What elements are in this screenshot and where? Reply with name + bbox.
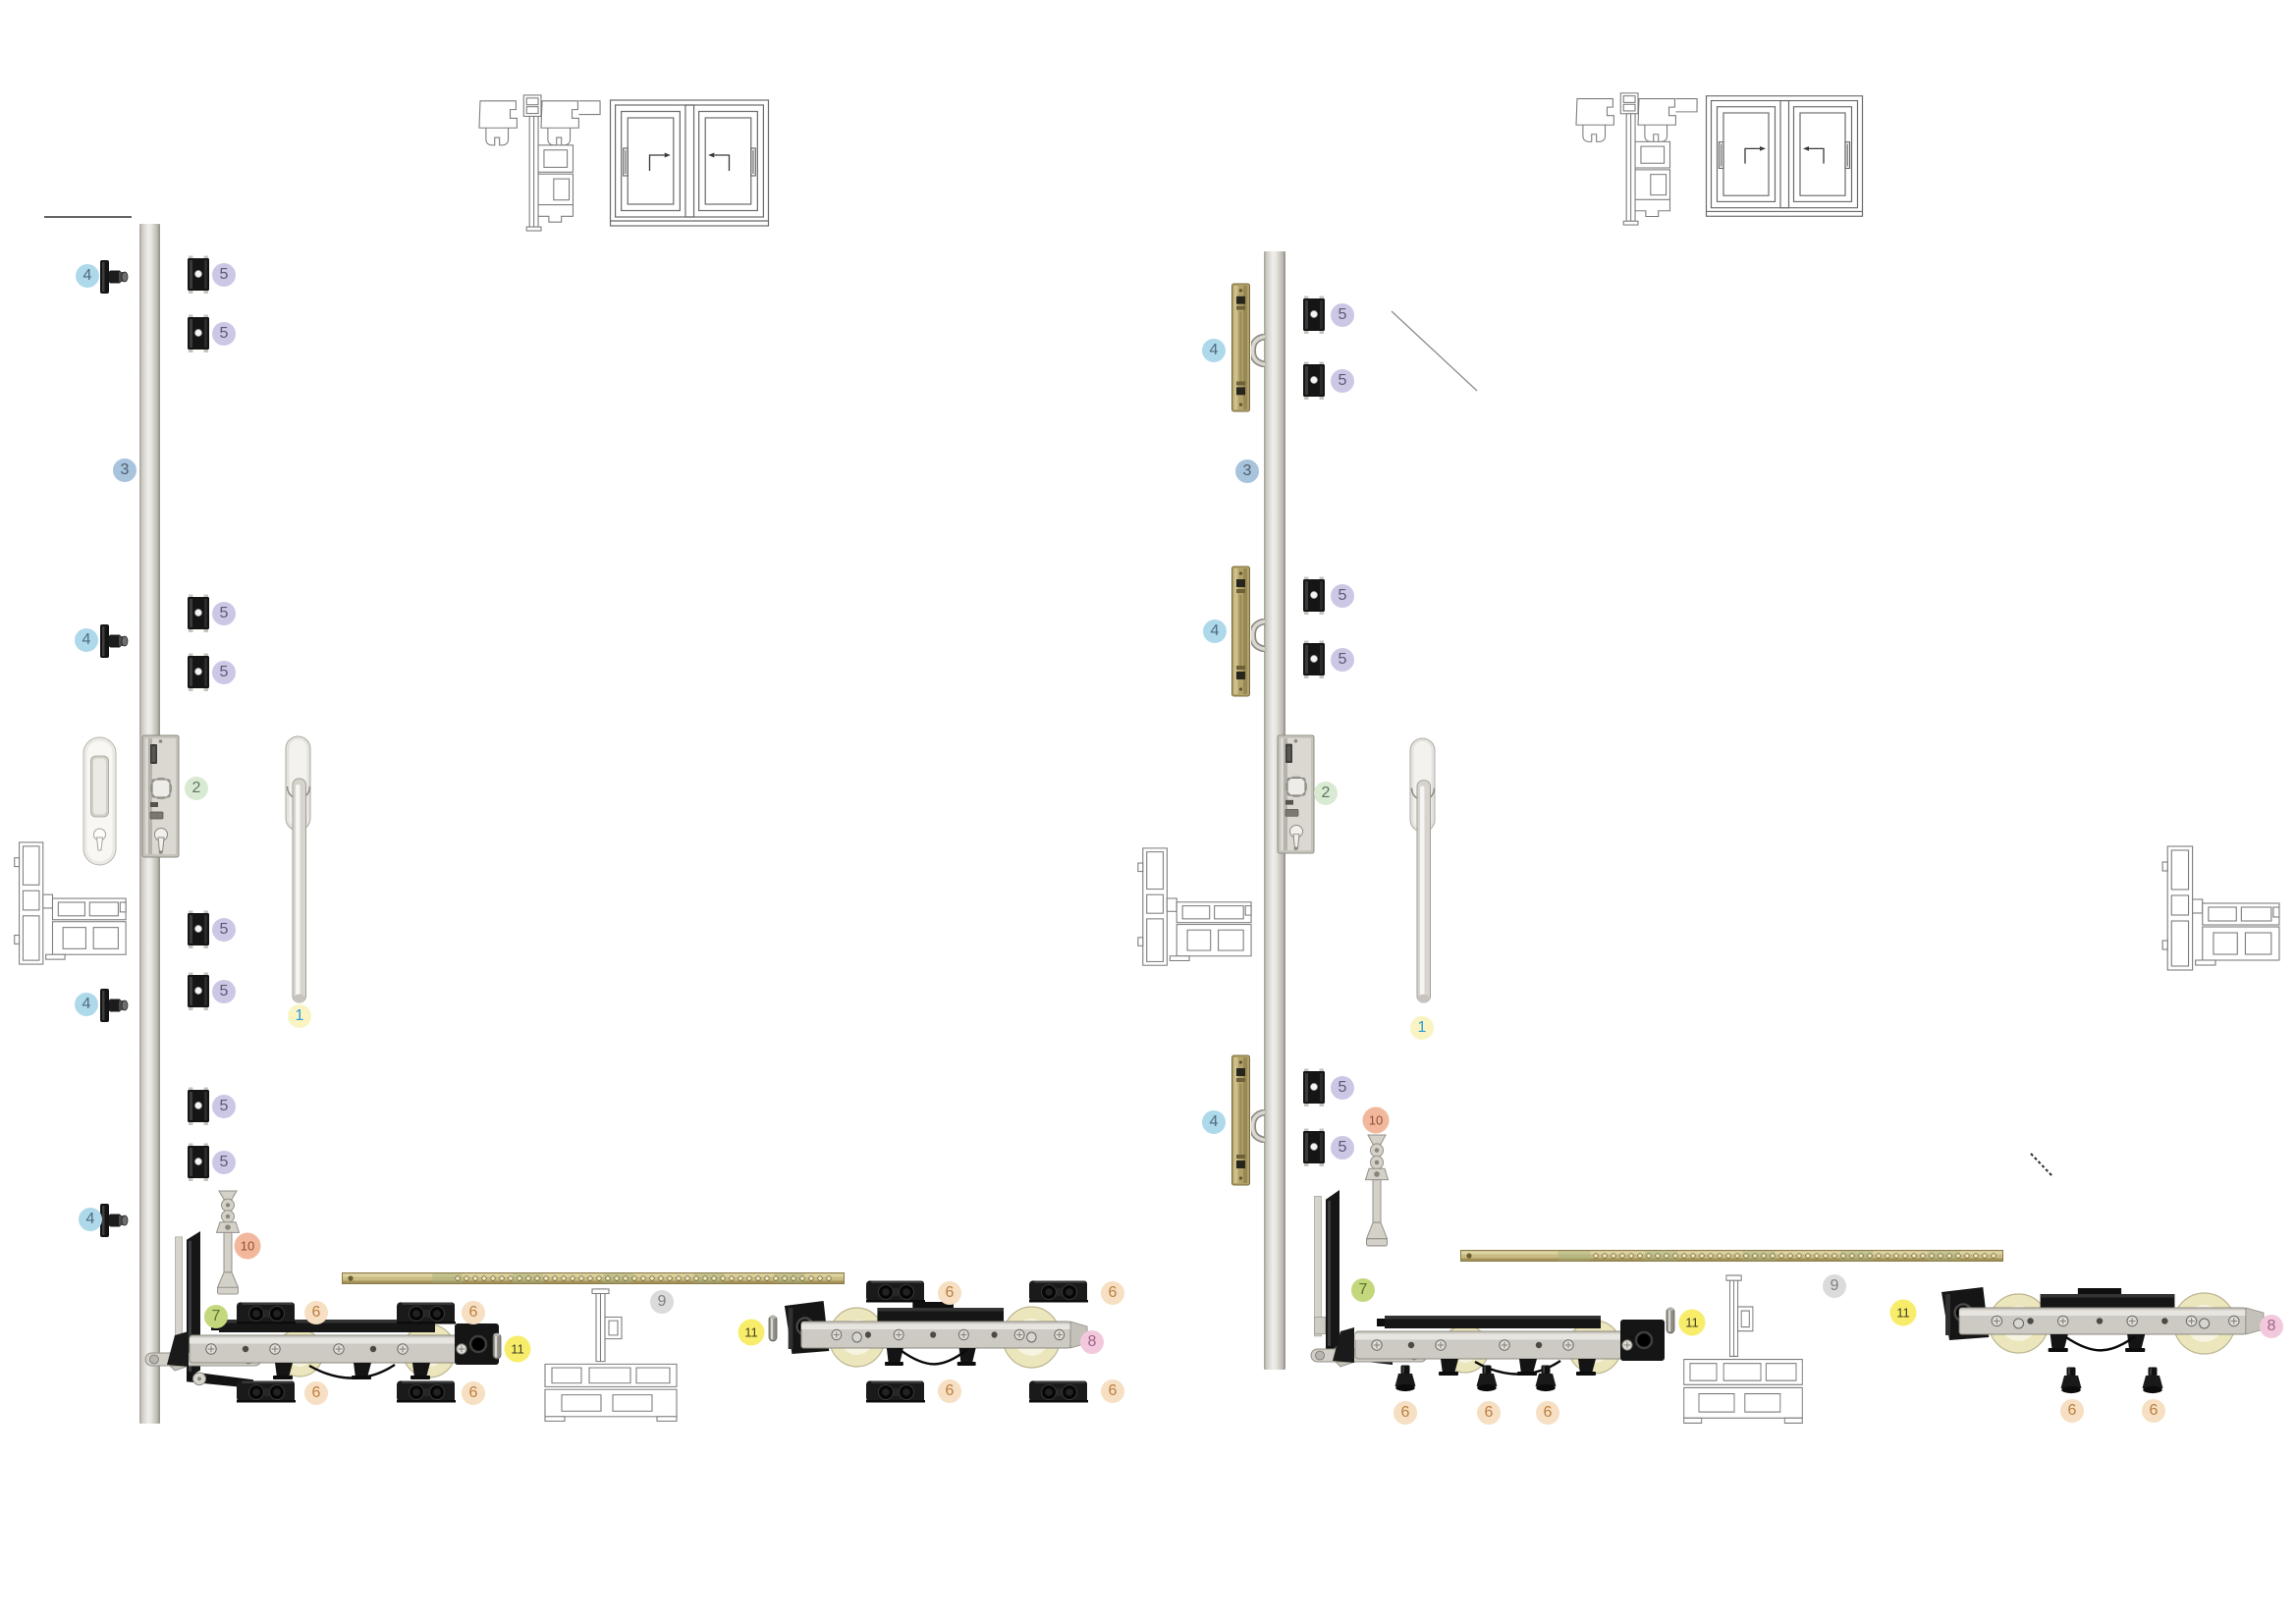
part-label-5: 5	[212, 263, 236, 287]
guide-block-part6	[1027, 1278, 1090, 1306]
guide-foot-part6	[1394, 1365, 1416, 1392]
part-label-4: 4	[1202, 1110, 1226, 1134]
guide-block-part6	[1027, 1378, 1090, 1406]
part-label-6: 6	[1101, 1379, 1124, 1403]
part-label-5: 5	[212, 602, 236, 625]
escutcheon-plate	[82, 736, 118, 866]
striker-plate-part4	[1230, 283, 1252, 412]
track-profile-drawing	[1681, 1274, 1805, 1441]
striker-plate-part4	[1230, 566, 1252, 697]
guide-block-part6	[864, 1378, 927, 1406]
guide-foot-part6	[2142, 1367, 2163, 1394]
part-label-6: 6	[938, 1281, 961, 1305]
part-label-1: 1	[1410, 1016, 1434, 1040]
part-label-5: 5	[1331, 648, 1354, 672]
part-label-11: 11	[1890, 1300, 1917, 1326]
profile-section-drawing	[478, 92, 604, 232]
part-label-5: 5	[212, 661, 236, 684]
keep-plate-part5	[1302, 576, 1328, 616]
keep-plate-part5	[1302, 640, 1328, 679]
keep-plate-part5	[187, 972, 212, 1011]
part-label-5: 5	[212, 918, 236, 942]
part-label-2: 2	[1314, 782, 1338, 805]
guide-block-part6	[395, 1378, 458, 1406]
part-label-5: 5	[1331, 1136, 1354, 1160]
mortise-lock-part2	[1276, 733, 1317, 855]
keep-plate-part5	[187, 910, 212, 949]
drilled-bar-part9	[1460, 1248, 2003, 1264]
part-label-3: 3	[113, 459, 137, 482]
guide-foot-part6	[1535, 1365, 1557, 1392]
pivot-pin-part11	[1666, 1306, 1675, 1335]
part-label-7: 7	[1351, 1278, 1375, 1302]
part-label-5: 5	[1331, 369, 1354, 393]
part-label-9: 9	[650, 1290, 674, 1314]
part-label-8: 8	[2260, 1315, 2283, 1338]
diagram-canvas: 4444555555553211076666911116666844455555…	[0, 0, 2296, 1620]
part-label-6: 6	[1394, 1401, 1417, 1425]
keep-plate-part5	[187, 1143, 212, 1182]
keep-plate-part5	[1302, 1068, 1328, 1107]
keep-plate-part5	[187, 314, 212, 353]
part-label-5: 5	[212, 980, 236, 1003]
locking-pin-part4	[99, 259, 129, 295]
part-label-6: 6	[1101, 1281, 1124, 1305]
part-label-1: 1	[288, 1004, 311, 1028]
part-label-5: 5	[1331, 1076, 1354, 1100]
part-label-10: 10	[235, 1233, 261, 1260]
part-label-6: 6	[938, 1379, 961, 1403]
keep-plate-part5	[1302, 361, 1328, 401]
keep-plate-part5	[187, 594, 212, 633]
locking-pin-part4	[99, 623, 129, 659]
guide-foot-part6	[2060, 1367, 2082, 1394]
guide-foot-part6	[1476, 1365, 1498, 1392]
part-label-5: 5	[212, 1095, 236, 1118]
part-label-4: 4	[1202, 339, 1226, 362]
profile-section-drawing	[1575, 90, 1701, 226]
part-label-5: 5	[1331, 584, 1354, 608]
part-label-2: 2	[185, 777, 208, 800]
part-label-11: 11	[738, 1320, 765, 1346]
hook-bolt	[1251, 334, 1265, 367]
part-label-5: 5	[1331, 303, 1354, 327]
guide-block-part6	[395, 1300, 458, 1327]
part-label-6: 6	[462, 1381, 485, 1405]
roller-carriage-part8	[1940, 1274, 2266, 1368]
corner-profile-drawing	[1129, 846, 1255, 969]
mortise-lock-part2	[140, 733, 182, 859]
keep-plate-part5	[1302, 1128, 1328, 1167]
part-label-6: 6	[304, 1381, 328, 1405]
part-label-6: 6	[2060, 1399, 2084, 1423]
keep-plate-part5	[187, 1087, 212, 1126]
part-label-4: 4	[75, 993, 98, 1016]
striker-plate-part4	[1230, 1054, 1252, 1186]
locking-pin-part4	[99, 1203, 129, 1238]
part-label-10: 10	[1363, 1107, 1390, 1134]
leader-line	[43, 215, 134, 220]
part-label-8: 8	[1080, 1330, 1104, 1354]
corner-profile-drawing	[2154, 844, 2283, 974]
part-label-4: 4	[76, 264, 99, 288]
part-label-11: 11	[1679, 1310, 1706, 1336]
part-label-6: 6	[1536, 1401, 1559, 1425]
part-label-3: 3	[1235, 459, 1259, 483]
guide-block-part6	[235, 1300, 298, 1327]
part-label-5: 5	[212, 322, 236, 346]
part-label-4: 4	[75, 628, 98, 652]
part-label-9: 9	[1823, 1274, 1846, 1298]
window-handle-part1	[1405, 737, 1441, 1010]
keep-plate-part5	[187, 653, 212, 692]
part-label-7: 7	[204, 1305, 228, 1328]
part-label-6: 6	[462, 1301, 485, 1324]
sliding-window-drawing	[1705, 90, 1864, 222]
pivot-pin-part11	[492, 1331, 502, 1361]
part-label-4: 4	[79, 1208, 102, 1231]
part-label-6: 6	[1477, 1401, 1501, 1425]
hook-bolt	[1251, 1109, 1265, 1143]
part-label-6: 6	[304, 1301, 328, 1324]
hook-bolt	[1251, 619, 1265, 652]
part-label-5: 5	[212, 1151, 236, 1174]
drilled-bar-part9	[342, 1270, 845, 1286]
guide-block-part6	[864, 1278, 927, 1306]
keep-plate-part5	[1302, 296, 1328, 335]
pivot-pin-part11	[768, 1314, 778, 1343]
keep-plate-part5	[187, 255, 212, 295]
part-label-6: 6	[2142, 1399, 2165, 1423]
leader-line	[1390, 309, 1480, 394]
leader-line	[2029, 1152, 2055, 1179]
part-label-4: 4	[1203, 620, 1227, 643]
window-handle-part1	[281, 735, 316, 1010]
locking-pin-part4	[99, 988, 129, 1023]
part-label-11: 11	[505, 1336, 531, 1363]
sliding-window-drawing	[609, 94, 770, 232]
guide-block-part6	[235, 1378, 298, 1406]
